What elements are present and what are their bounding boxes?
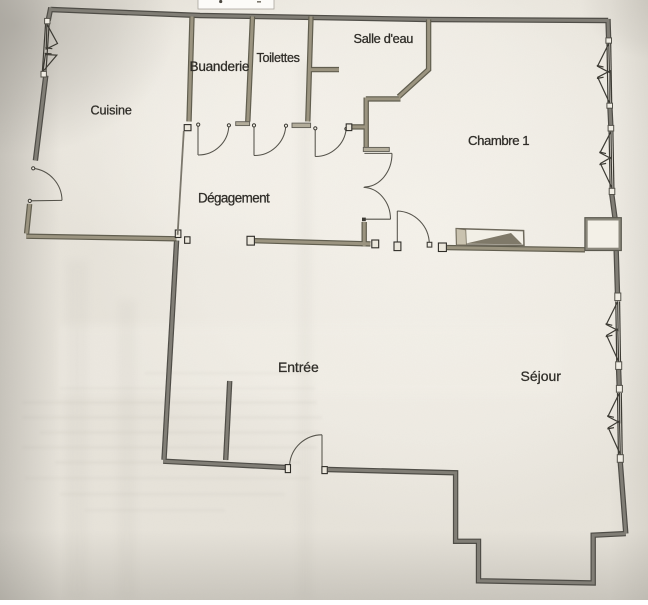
svg-text:Buanderie: Buanderie [190, 59, 250, 74]
svg-text:Salle d'eau: Salle d'eau [354, 31, 414, 46]
svg-text:Entrée: Entrée [278, 359, 319, 375]
svg-text:Dégagement: Dégagement [198, 190, 270, 205]
svg-text:Toilettes: Toilettes [257, 51, 300, 65]
svg-text:Cuisine: Cuisine [91, 103, 132, 117]
svg-text:Séjour: Séjour [521, 368, 562, 384]
svg-text:Chambre 1: Chambre 1 [468, 133, 529, 148]
